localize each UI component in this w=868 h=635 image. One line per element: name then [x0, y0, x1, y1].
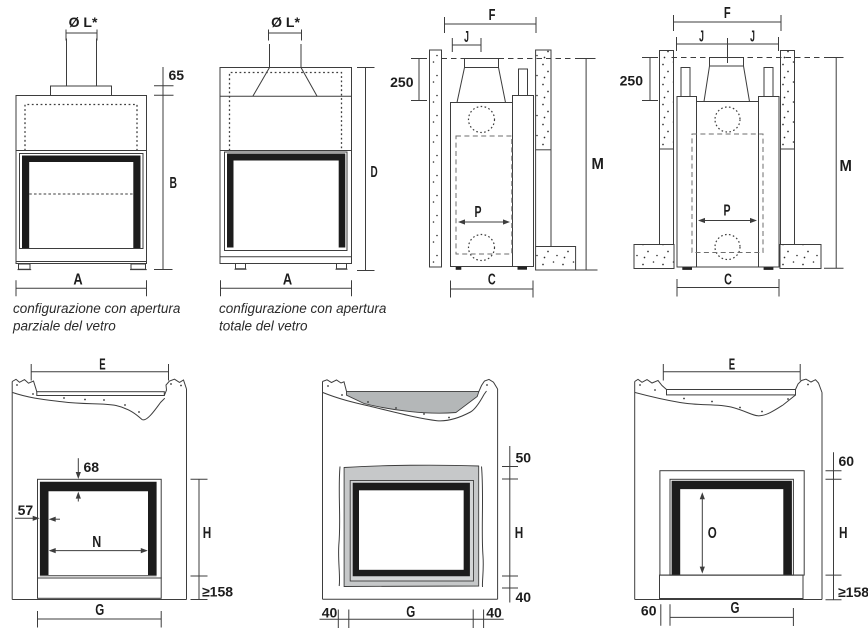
svg-text:F: F: [489, 7, 496, 24]
svg-text:parziale del vetro: parziale del vetro: [12, 319, 116, 334]
svg-text:N: N: [92, 534, 101, 551]
svg-text:J: J: [750, 29, 755, 46]
svg-text:40: 40: [516, 589, 532, 605]
svg-text:M: M: [592, 156, 604, 173]
svg-text:40: 40: [486, 604, 502, 620]
svg-text:D: D: [371, 164, 378, 181]
svg-text:68: 68: [84, 459, 100, 475]
svg-text:H: H: [515, 525, 524, 542]
svg-text:G: G: [406, 604, 415, 621]
svg-text:E: E: [99, 357, 105, 374]
svg-text:configurazione con apertura: configurazione con apertura: [13, 301, 181, 316]
svg-text:G: G: [95, 602, 104, 619]
svg-text:H: H: [839, 525, 848, 542]
svg-text:B: B: [170, 175, 178, 192]
svg-text:Ø L*: Ø L*: [271, 14, 300, 30]
svg-text:C: C: [488, 272, 496, 289]
svg-text:65: 65: [169, 67, 185, 83]
svg-text:E: E: [729, 357, 735, 374]
svg-text:A: A: [73, 272, 82, 289]
svg-text:Ø L*: Ø L*: [69, 14, 98, 30]
svg-text:250: 250: [620, 73, 644, 89]
svg-text:50: 50: [516, 450, 532, 466]
svg-text:≥158: ≥158: [838, 584, 868, 600]
svg-text:J: J: [464, 29, 469, 46]
svg-text:P: P: [475, 204, 482, 221]
svg-text:60: 60: [641, 603, 657, 619]
svg-text:60: 60: [839, 453, 855, 469]
svg-text:J: J: [699, 29, 704, 46]
svg-text:40: 40: [322, 604, 338, 620]
svg-text:C: C: [724, 272, 732, 289]
svg-text:M: M: [840, 158, 852, 175]
svg-text:H: H: [203, 525, 212, 542]
svg-text:F: F: [724, 5, 731, 22]
svg-text:G: G: [731, 600, 740, 617]
svg-text:totale del vetro: totale del vetro: [219, 319, 308, 334]
svg-text:57: 57: [18, 502, 34, 518]
svg-text:configurazione con apertura: configurazione con apertura: [219, 301, 387, 316]
svg-text:P: P: [724, 203, 731, 220]
svg-text:≥158: ≥158: [202, 584, 233, 600]
svg-text:A: A: [283, 272, 292, 289]
svg-text:250: 250: [390, 74, 414, 90]
svg-text:O: O: [708, 525, 717, 542]
